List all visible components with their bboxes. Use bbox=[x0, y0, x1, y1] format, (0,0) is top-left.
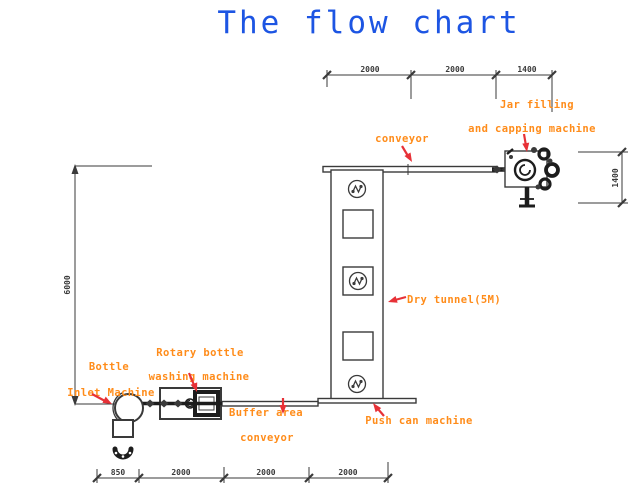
label-dry-tunnel: Dry tunnel(5M) bbox=[407, 294, 501, 306]
tunnel-box-3 bbox=[343, 332, 373, 360]
dim-top-1: 2000 bbox=[360, 65, 379, 74]
label-bottle-inlet-1: Bottle bbox=[89, 361, 129, 373]
label-jar-filling-2: and capping machine bbox=[468, 123, 596, 135]
flow-chart-page: The flow chart 2000 2000 1400 6000 1400 … bbox=[0, 0, 640, 488]
label-bottle-inlet-2: Inlet Machine bbox=[67, 387, 154, 399]
push-can-platform bbox=[318, 399, 416, 404]
arrow-dry-tunnel bbox=[387, 296, 406, 305]
dim-top-2: 2000 bbox=[445, 65, 464, 74]
label-push-can-machine: Push can machine bbox=[365, 415, 473, 427]
arrow-conveyor-top bbox=[402, 146, 415, 164]
dim-right-height: 1400 bbox=[611, 168, 620, 187]
tunnel-box-1 bbox=[343, 210, 373, 238]
bottle-inlet-machine bbox=[113, 393, 143, 458]
dim-left-height: 6000 bbox=[63, 275, 72, 294]
right-dimension: 1400 bbox=[578, 148, 628, 207]
label-jar-filling-1: Jar filling bbox=[500, 99, 574, 111]
dim-bottom-1: 850 bbox=[111, 468, 126, 477]
label-rotary-washer-2: washing machine bbox=[149, 371, 250, 383]
flow-chart-drawing: The flow chart 2000 2000 1400 6000 1400 … bbox=[0, 0, 640, 488]
dim-bottom-4: 2000 bbox=[338, 468, 357, 477]
dim-bottom-2: 2000 bbox=[171, 468, 190, 477]
dry-tunnel bbox=[331, 170, 383, 399]
dim-bottom-3: 2000 bbox=[256, 468, 275, 477]
dim-top-3: 1400 bbox=[517, 65, 536, 74]
bottom-dimension: 850 2000 2000 2000 bbox=[93, 462, 392, 483]
page-title: The flow chart bbox=[217, 5, 520, 41]
label-buffer-area-2: conveyor bbox=[240, 432, 294, 444]
buffer-conveyor-line bbox=[222, 402, 318, 407]
jar-filling-machine bbox=[505, 147, 558, 207]
label-conveyor-top: conveyor bbox=[375, 133, 429, 145]
label-rotary-washer-1: Rotary bottle bbox=[156, 347, 243, 359]
label-buffer-area-1: Buffer area bbox=[229, 407, 303, 419]
arrow-jar-filling bbox=[522, 134, 530, 152]
